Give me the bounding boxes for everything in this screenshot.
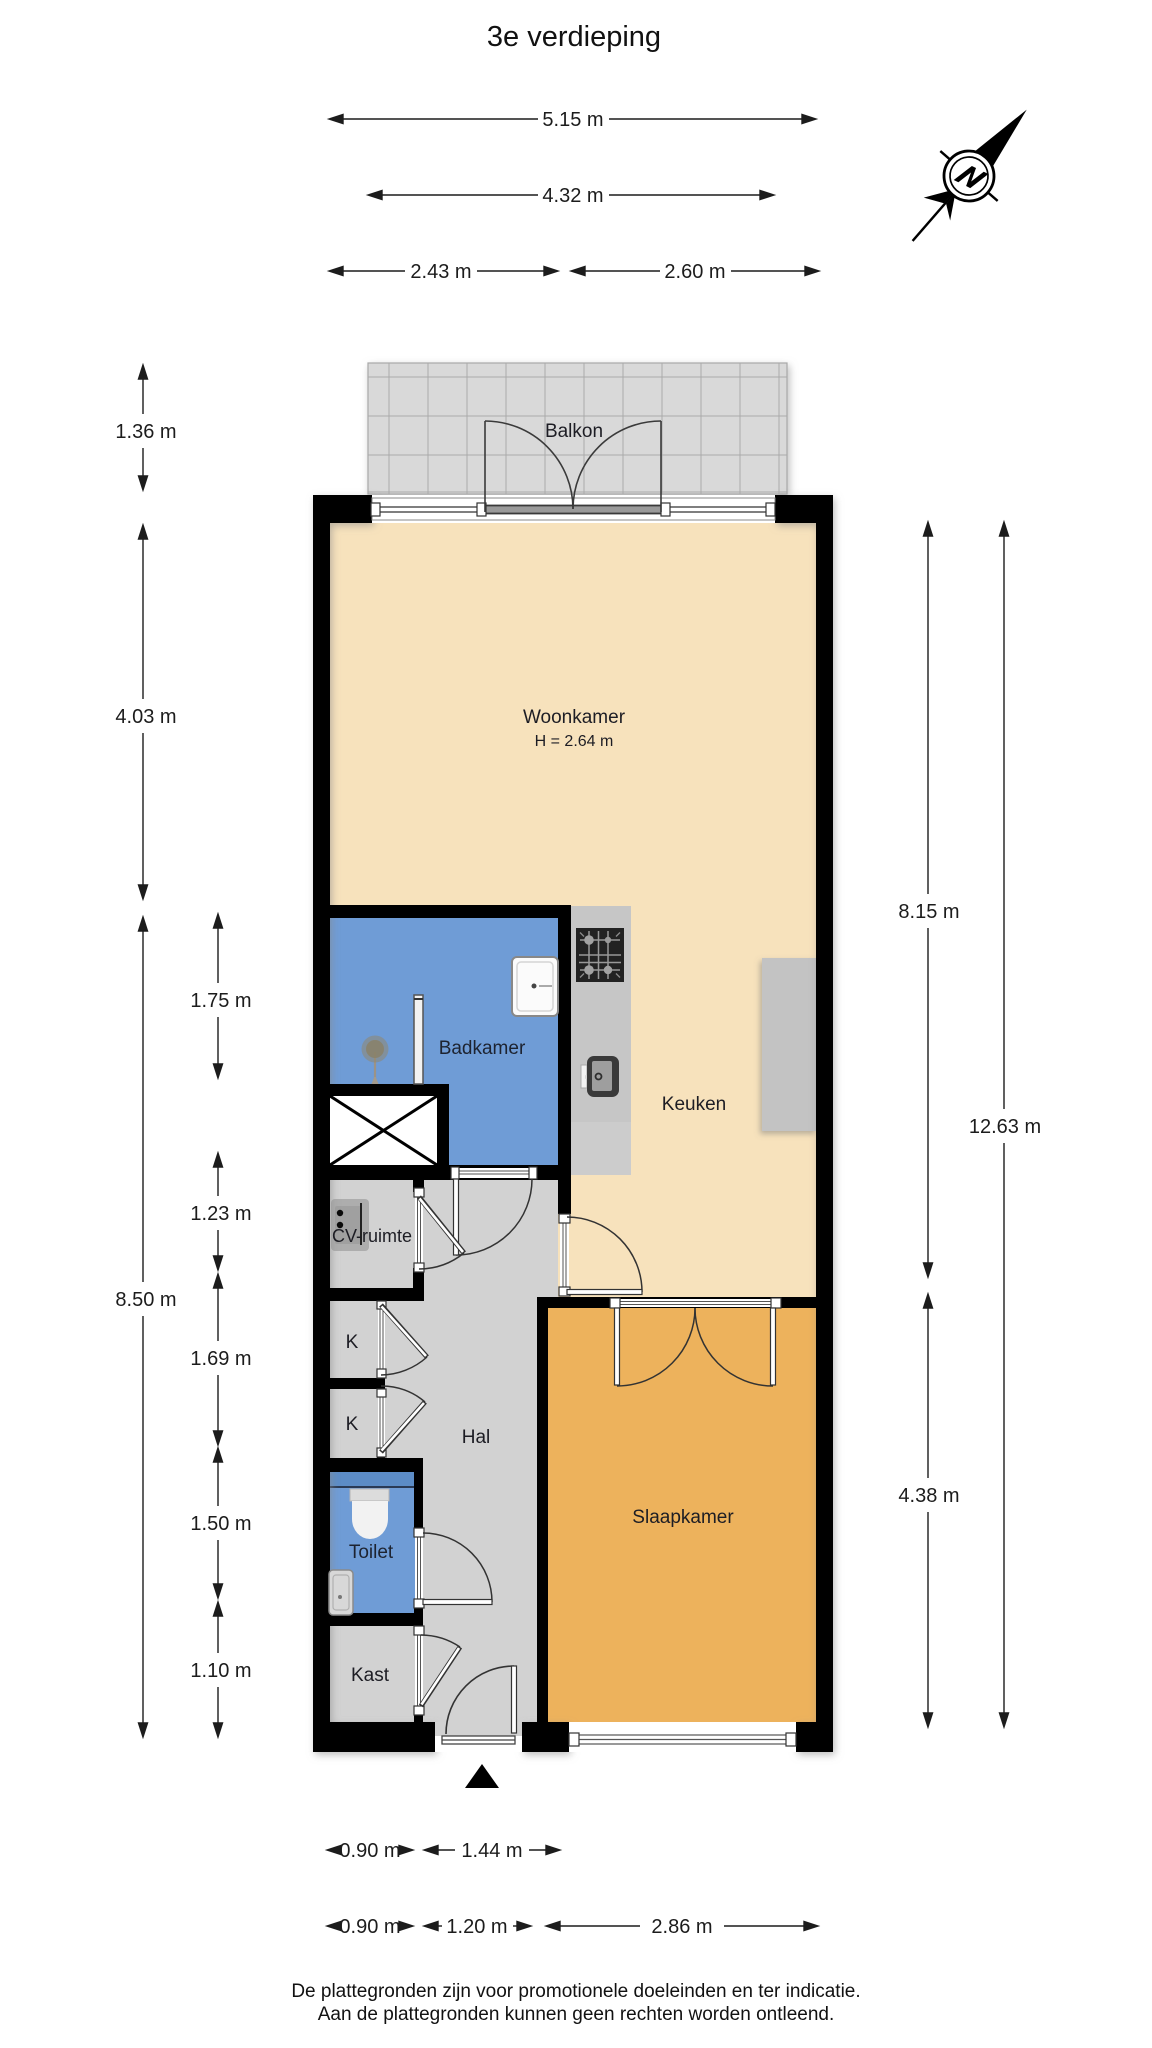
svg-text:12.63 m: 12.63 m — [969, 1116, 1041, 1138]
svg-text:4.38 m: 4.38 m — [898, 1485, 959, 1507]
svg-text:1.69 m: 1.69 m — [190, 1348, 251, 1370]
svg-text:1.50 m: 1.50 m — [190, 1513, 251, 1535]
svg-text:Slaapkamer: Slaapkamer — [632, 1507, 734, 1528]
svg-text:0.90 m: 0.90 m — [339, 1916, 400, 1938]
svg-text:1.75 m: 1.75 m — [190, 990, 251, 1012]
svg-text:Aan de plattegronden kunnen ge: Aan de plattegronden kunnen geen rechten… — [318, 2004, 835, 2025]
svg-text:1.44 m: 1.44 m — [461, 1840, 522, 1862]
svg-text:1.36 m: 1.36 m — [115, 421, 176, 443]
svg-text:CV-ruimte: CV-ruimte — [332, 1226, 412, 1246]
svg-text:K: K — [346, 1332, 359, 1353]
svg-text:2.43 m: 2.43 m — [410, 261, 471, 283]
svg-text:8.50 m: 8.50 m — [115, 1289, 176, 1311]
svg-text:H = 2.64 m: H = 2.64 m — [535, 733, 614, 750]
svg-text:1.23 m: 1.23 m — [190, 1203, 251, 1225]
svg-text:Hal: Hal — [462, 1427, 491, 1448]
svg-text:2.60 m: 2.60 m — [664, 261, 725, 283]
svg-text:Keuken: Keuken — [662, 1094, 726, 1115]
svg-text:0.90 m: 0.90 m — [339, 1840, 400, 1862]
svg-text:De plattegronden zijn voor pro: De plattegronden zijn voor promotionele … — [291, 1981, 860, 2002]
svg-text:1.10 m: 1.10 m — [190, 1660, 251, 1682]
svg-text:Kast: Kast — [351, 1665, 390, 1686]
svg-text:Balkon: Balkon — [545, 421, 603, 442]
svg-text:3e verdieping: 3e verdieping — [487, 21, 661, 53]
svg-text:8.15 m: 8.15 m — [898, 901, 959, 923]
svg-text:Woonkamer: Woonkamer — [523, 707, 626, 728]
svg-text:2.86 m: 2.86 m — [651, 1916, 712, 1938]
svg-text:K: K — [346, 1414, 359, 1435]
svg-text:Toilet: Toilet — [349, 1542, 394, 1563]
svg-text:Badkamer: Badkamer — [439, 1038, 526, 1059]
svg-text:5.15 m: 5.15 m — [542, 109, 603, 131]
svg-text:4.03 m: 4.03 m — [115, 706, 176, 728]
svg-text:1.20 m: 1.20 m — [446, 1916, 507, 1938]
svg-text:4.32 m: 4.32 m — [542, 185, 603, 207]
